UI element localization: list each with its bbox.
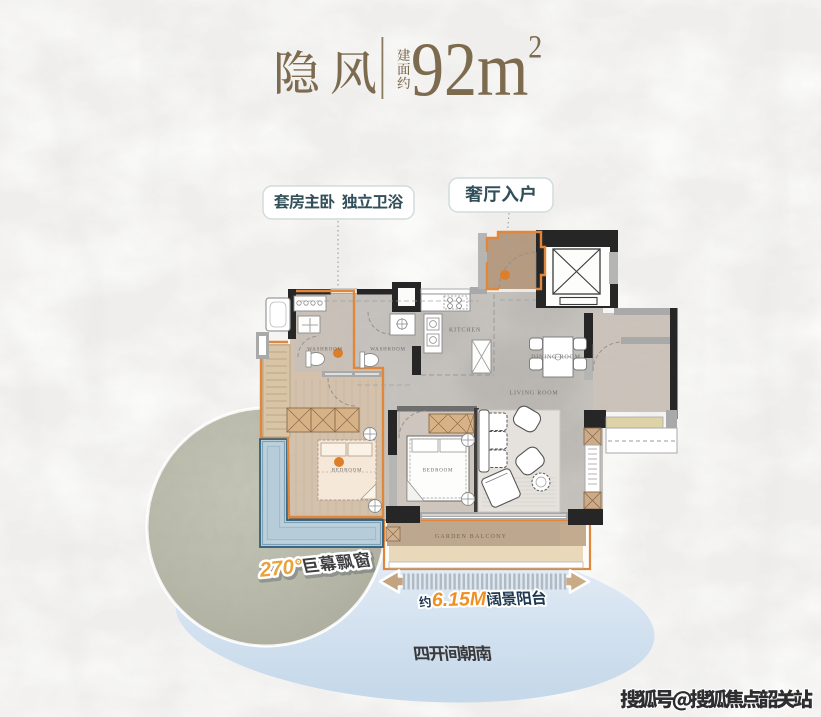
svg-text:GARDEN BALCONY: GARDEN BALCONY	[435, 534, 507, 540]
svg-text:BEDROOM: BEDROOM	[332, 469, 363, 474]
svg-text:BEDROOM: BEDROOM	[423, 469, 454, 474]
svg-text:WASHROOM: WASHROOM	[307, 348, 343, 353]
svg-text:WASHROOM: WASHROOM	[370, 348, 406, 353]
svg-text:LIVING ROOM: LIVING ROOM	[510, 391, 559, 397]
svg-text:92m2: 92m2	[411, 26, 542, 112]
svg-text:KITCHEN: KITCHEN	[449, 328, 481, 334]
svg-text:DINING ROOM: DINING ROOM	[531, 355, 581, 361]
